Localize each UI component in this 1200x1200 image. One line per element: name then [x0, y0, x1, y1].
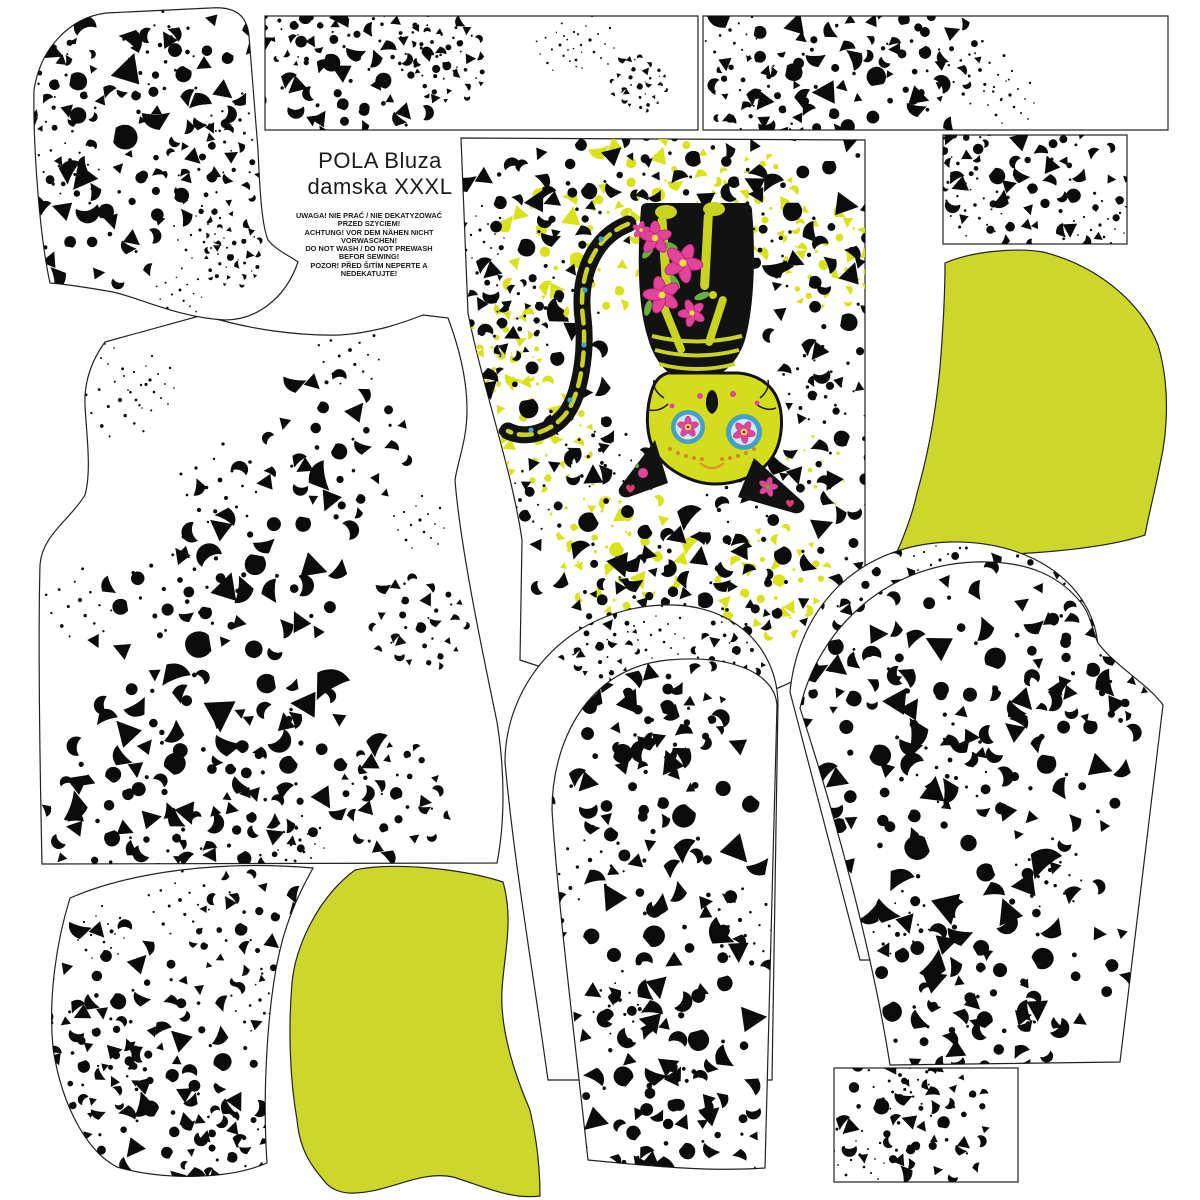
piece-bodice [24, 315, 503, 940]
pattern-title-line1: POLA Bluza [268, 148, 492, 174]
pattern-title-line2: damska XXXL [268, 174, 492, 200]
piece-pocket-lime [290, 866, 540, 1196]
pattern-title: POLA Bluza damska XXXL [268, 148, 492, 200]
piece-hood-side-lime [892, 250, 1167, 563]
cat-eye-left [671, 410, 705, 444]
cat-eye-right [726, 414, 762, 450]
care-warning-text: UWAGA! NIE PRAĆ / NIE DEKATYZOWAĆ PRZED … [258, 212, 480, 278]
pattern-pieces [0, 0, 1168, 1200]
piece-hood-side-print [0, 0, 298, 320]
piece-pocket-print [11, 847, 325, 1200]
sewing-pattern-sheet [0, 0, 1200, 1200]
warning-line: NEDEKATUJTE! [258, 270, 480, 278]
